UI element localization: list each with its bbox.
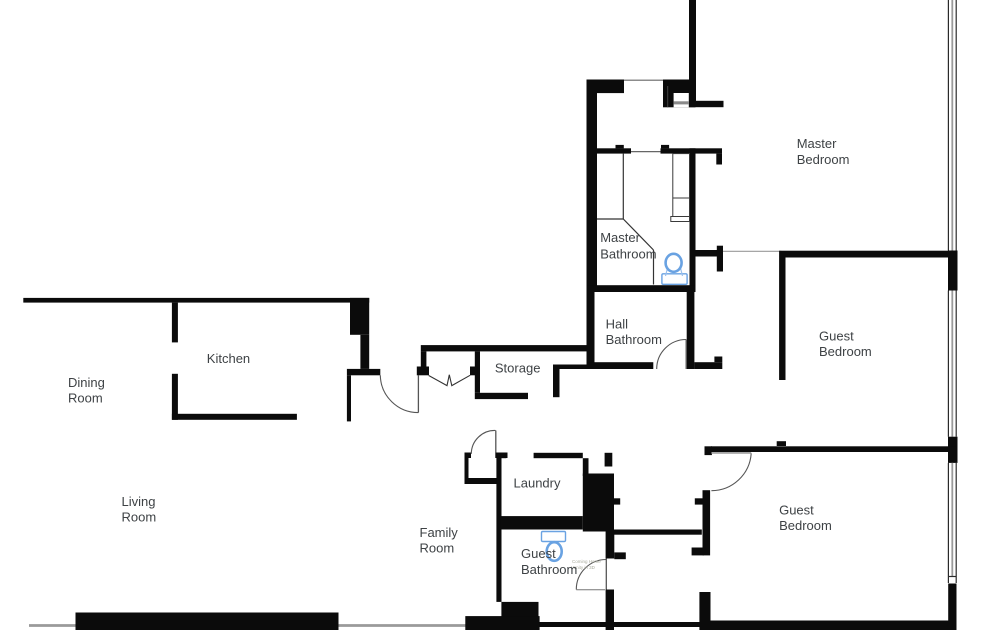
svg-text:Guest: Guest bbox=[819, 329, 854, 344]
svg-text:Hall: Hall bbox=[606, 316, 629, 331]
svg-text:Bedroom: Bedroom bbox=[819, 344, 872, 359]
svg-text:Family: Family bbox=[420, 525, 459, 540]
svg-text:Bathroom: Bathroom bbox=[606, 332, 662, 347]
svg-text:Room: Room bbox=[68, 391, 103, 406]
svg-text:Master: Master bbox=[797, 136, 837, 151]
svg-text:Room: Room bbox=[420, 541, 455, 556]
svg-text:Kitchen: Kitchen bbox=[207, 351, 250, 366]
svg-text:Master: Master bbox=[600, 230, 640, 245]
svg-text:Laundry: Laundry bbox=[514, 475, 561, 490]
svg-text:Guest: Guest bbox=[779, 502, 814, 517]
svg-text:Storage: Storage bbox=[495, 361, 541, 376]
svg-text:Bedroom: Bedroom bbox=[779, 518, 832, 533]
svg-text:Guest: Guest bbox=[521, 546, 556, 561]
svg-text:Dining: Dining bbox=[68, 375, 105, 390]
svg-text:Bedroom: Bedroom bbox=[797, 152, 850, 167]
svg-text:Room: Room bbox=[122, 509, 157, 524]
svg-text:Bathroom: Bathroom bbox=[521, 562, 577, 577]
svg-text:Living: Living bbox=[122, 494, 156, 509]
svg-text:Bathroom: Bathroom bbox=[600, 246, 656, 261]
